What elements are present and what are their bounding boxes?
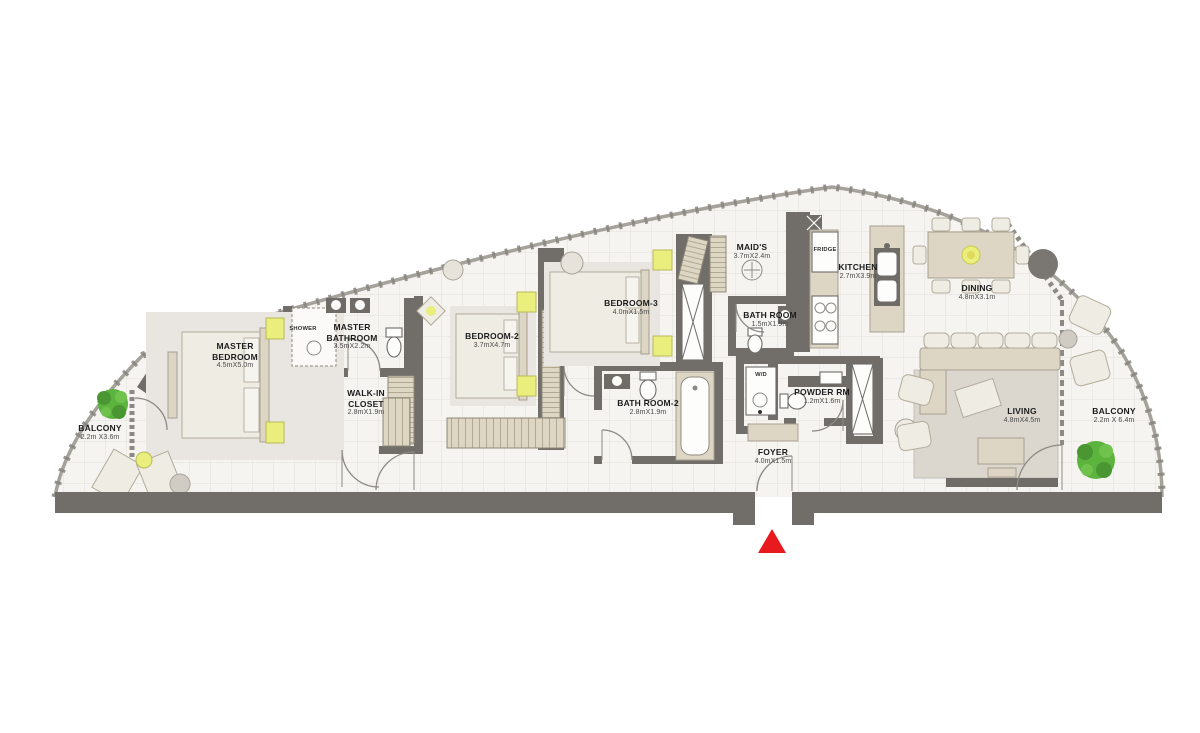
floor-plan-drawing [0, 0, 1200, 733]
entrance-arrow-icon [758, 529, 786, 553]
bedroom-3-furniture [544, 250, 672, 366]
floor-plan-page: BALCONY 2.2m X3.6m MASTER BEDROOM 4.5mX5… [0, 0, 1200, 733]
tree-icon [1077, 441, 1115, 479]
living-room-furniture [895, 333, 1060, 487]
